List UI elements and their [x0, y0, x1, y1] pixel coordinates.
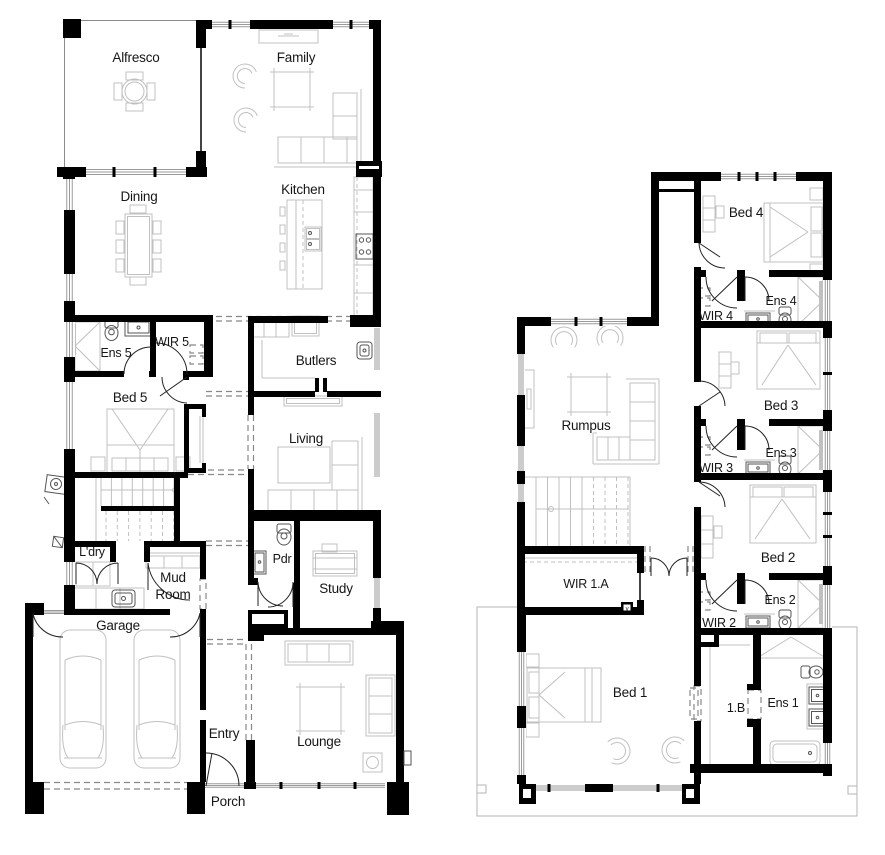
svg-text:Mud: Mud: [160, 570, 186, 585]
svg-text:v: v: [626, 607, 629, 613]
svg-text:Bed 2: Bed 2: [761, 550, 795, 565]
svg-text:Ens 5: Ens 5: [101, 346, 132, 360]
svg-text:Alfresco: Alfresco: [112, 50, 159, 65]
svg-text:Garage: Garage: [96, 618, 140, 633]
svg-text:Bed 4: Bed 4: [729, 205, 764, 220]
svg-text:L'dry: L'dry: [79, 545, 106, 559]
svg-text:Bed 1: Bed 1: [613, 685, 647, 700]
svg-text:WIR 3: WIR 3: [699, 461, 733, 475]
svg-text:Ens 2: Ens 2: [765, 593, 796, 607]
svg-text:Study: Study: [319, 581, 353, 596]
svg-text:Bed 3: Bed 3: [764, 398, 798, 413]
svg-text:Kitchen: Kitchen: [281, 182, 325, 197]
svg-text:Dining: Dining: [120, 189, 157, 204]
svg-text:Pdr: Pdr: [273, 552, 292, 566]
svg-text:Lounge: Lounge: [297, 734, 341, 749]
svg-text:Room: Room: [155, 587, 190, 602]
svg-text:WIR 4: WIR 4: [699, 309, 733, 323]
svg-text:Porch: Porch: [211, 794, 245, 809]
svg-text:Butlers: Butlers: [296, 353, 337, 368]
svg-text:Bed 5: Bed 5: [113, 390, 147, 405]
svg-text:WIR 2: WIR 2: [702, 616, 736, 630]
svg-text:Entry: Entry: [209, 726, 240, 741]
svg-text:Living: Living: [289, 431, 323, 446]
svg-text:Ens 1: Ens 1: [768, 696, 799, 710]
svg-text:1.B: 1.B: [727, 701, 745, 715]
svg-text:WIR 1.A: WIR 1.A: [563, 577, 609, 591]
svg-text:WIR 5: WIR 5: [155, 335, 189, 349]
svg-text:Ens 4: Ens 4: [766, 294, 797, 308]
svg-text:Ens 3: Ens 3: [766, 446, 797, 460]
svg-text:Family: Family: [277, 50, 316, 65]
svg-text:Rumpus: Rumpus: [561, 418, 611, 433]
